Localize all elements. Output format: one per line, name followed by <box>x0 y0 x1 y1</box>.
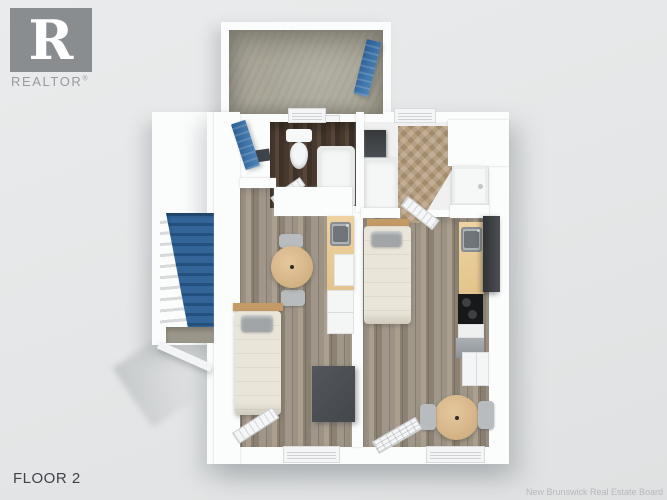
bed-headboard <box>233 303 283 311</box>
faucet <box>477 229 480 232</box>
burner <box>468 310 477 319</box>
chair <box>420 404 436 430</box>
interior-wall <box>356 112 364 212</box>
stove-body <box>458 324 484 338</box>
floor-label: FLOOR 2 <box>13 470 81 487</box>
washer <box>362 130 386 157</box>
window <box>283 446 340 463</box>
bathtub <box>362 158 400 214</box>
corner-cabinet <box>462 352 489 386</box>
chair <box>478 401 494 429</box>
watermark: New Brunswick Real Estate Board <box>526 487 663 497</box>
faucet <box>346 224 349 227</box>
interior-wall <box>448 120 509 166</box>
burner <box>462 298 471 307</box>
dresser <box>312 366 355 422</box>
dining-table <box>434 395 479 440</box>
toilet <box>286 129 312 142</box>
realtor-wordmark: REALTOR® <box>11 74 88 89</box>
kitchen-sink <box>330 222 351 246</box>
pillow <box>371 231 402 247</box>
registered-trademark-symbol: ® <box>82 76 87 83</box>
kitchen-cabinet <box>327 290 354 334</box>
interior-wall <box>240 178 276 188</box>
fridge <box>483 216 500 292</box>
kitchen-sink <box>461 227 482 252</box>
faucet <box>478 184 483 189</box>
floor-plan-image: R REALTOR® <box>0 0 667 500</box>
dining-table <box>271 246 313 288</box>
sink-basin <box>333 226 348 242</box>
chair <box>281 290 305 306</box>
window <box>288 108 326 123</box>
hallway-floor <box>274 187 352 216</box>
sink-basin <box>464 231 479 248</box>
interior-wall <box>361 208 400 218</box>
window <box>394 108 436 123</box>
realtor-logo-icon: R <box>10 8 92 72</box>
window <box>426 446 485 463</box>
realtor-wordmark-text: REALTOR <box>11 74 82 89</box>
dishwasher <box>334 254 354 286</box>
realtor-logo-letter: R <box>29 10 74 70</box>
pillow <box>241 315 273 332</box>
stove-cooktop <box>458 294 483 324</box>
stair-landing <box>166 327 216 343</box>
